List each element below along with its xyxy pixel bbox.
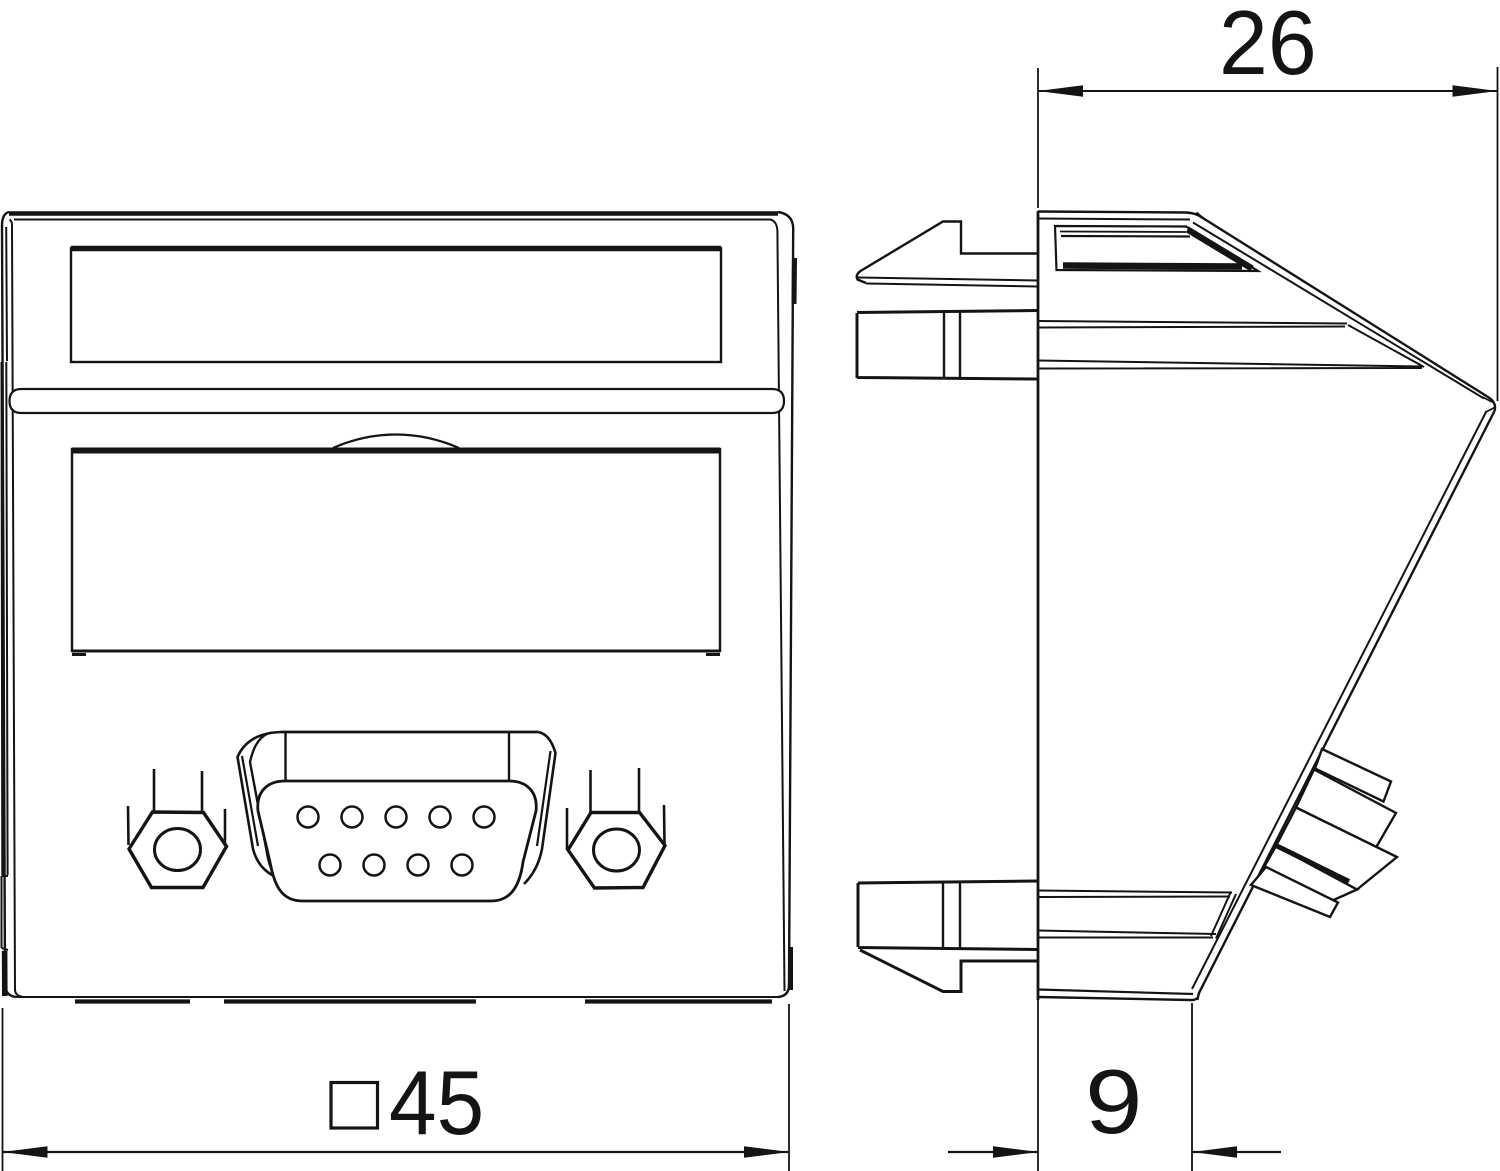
svg-text:45: 45: [389, 1052, 484, 1154]
svg-text:26: 26: [1219, 0, 1317, 93]
svg-text:9: 9: [1085, 1051, 1142, 1153]
